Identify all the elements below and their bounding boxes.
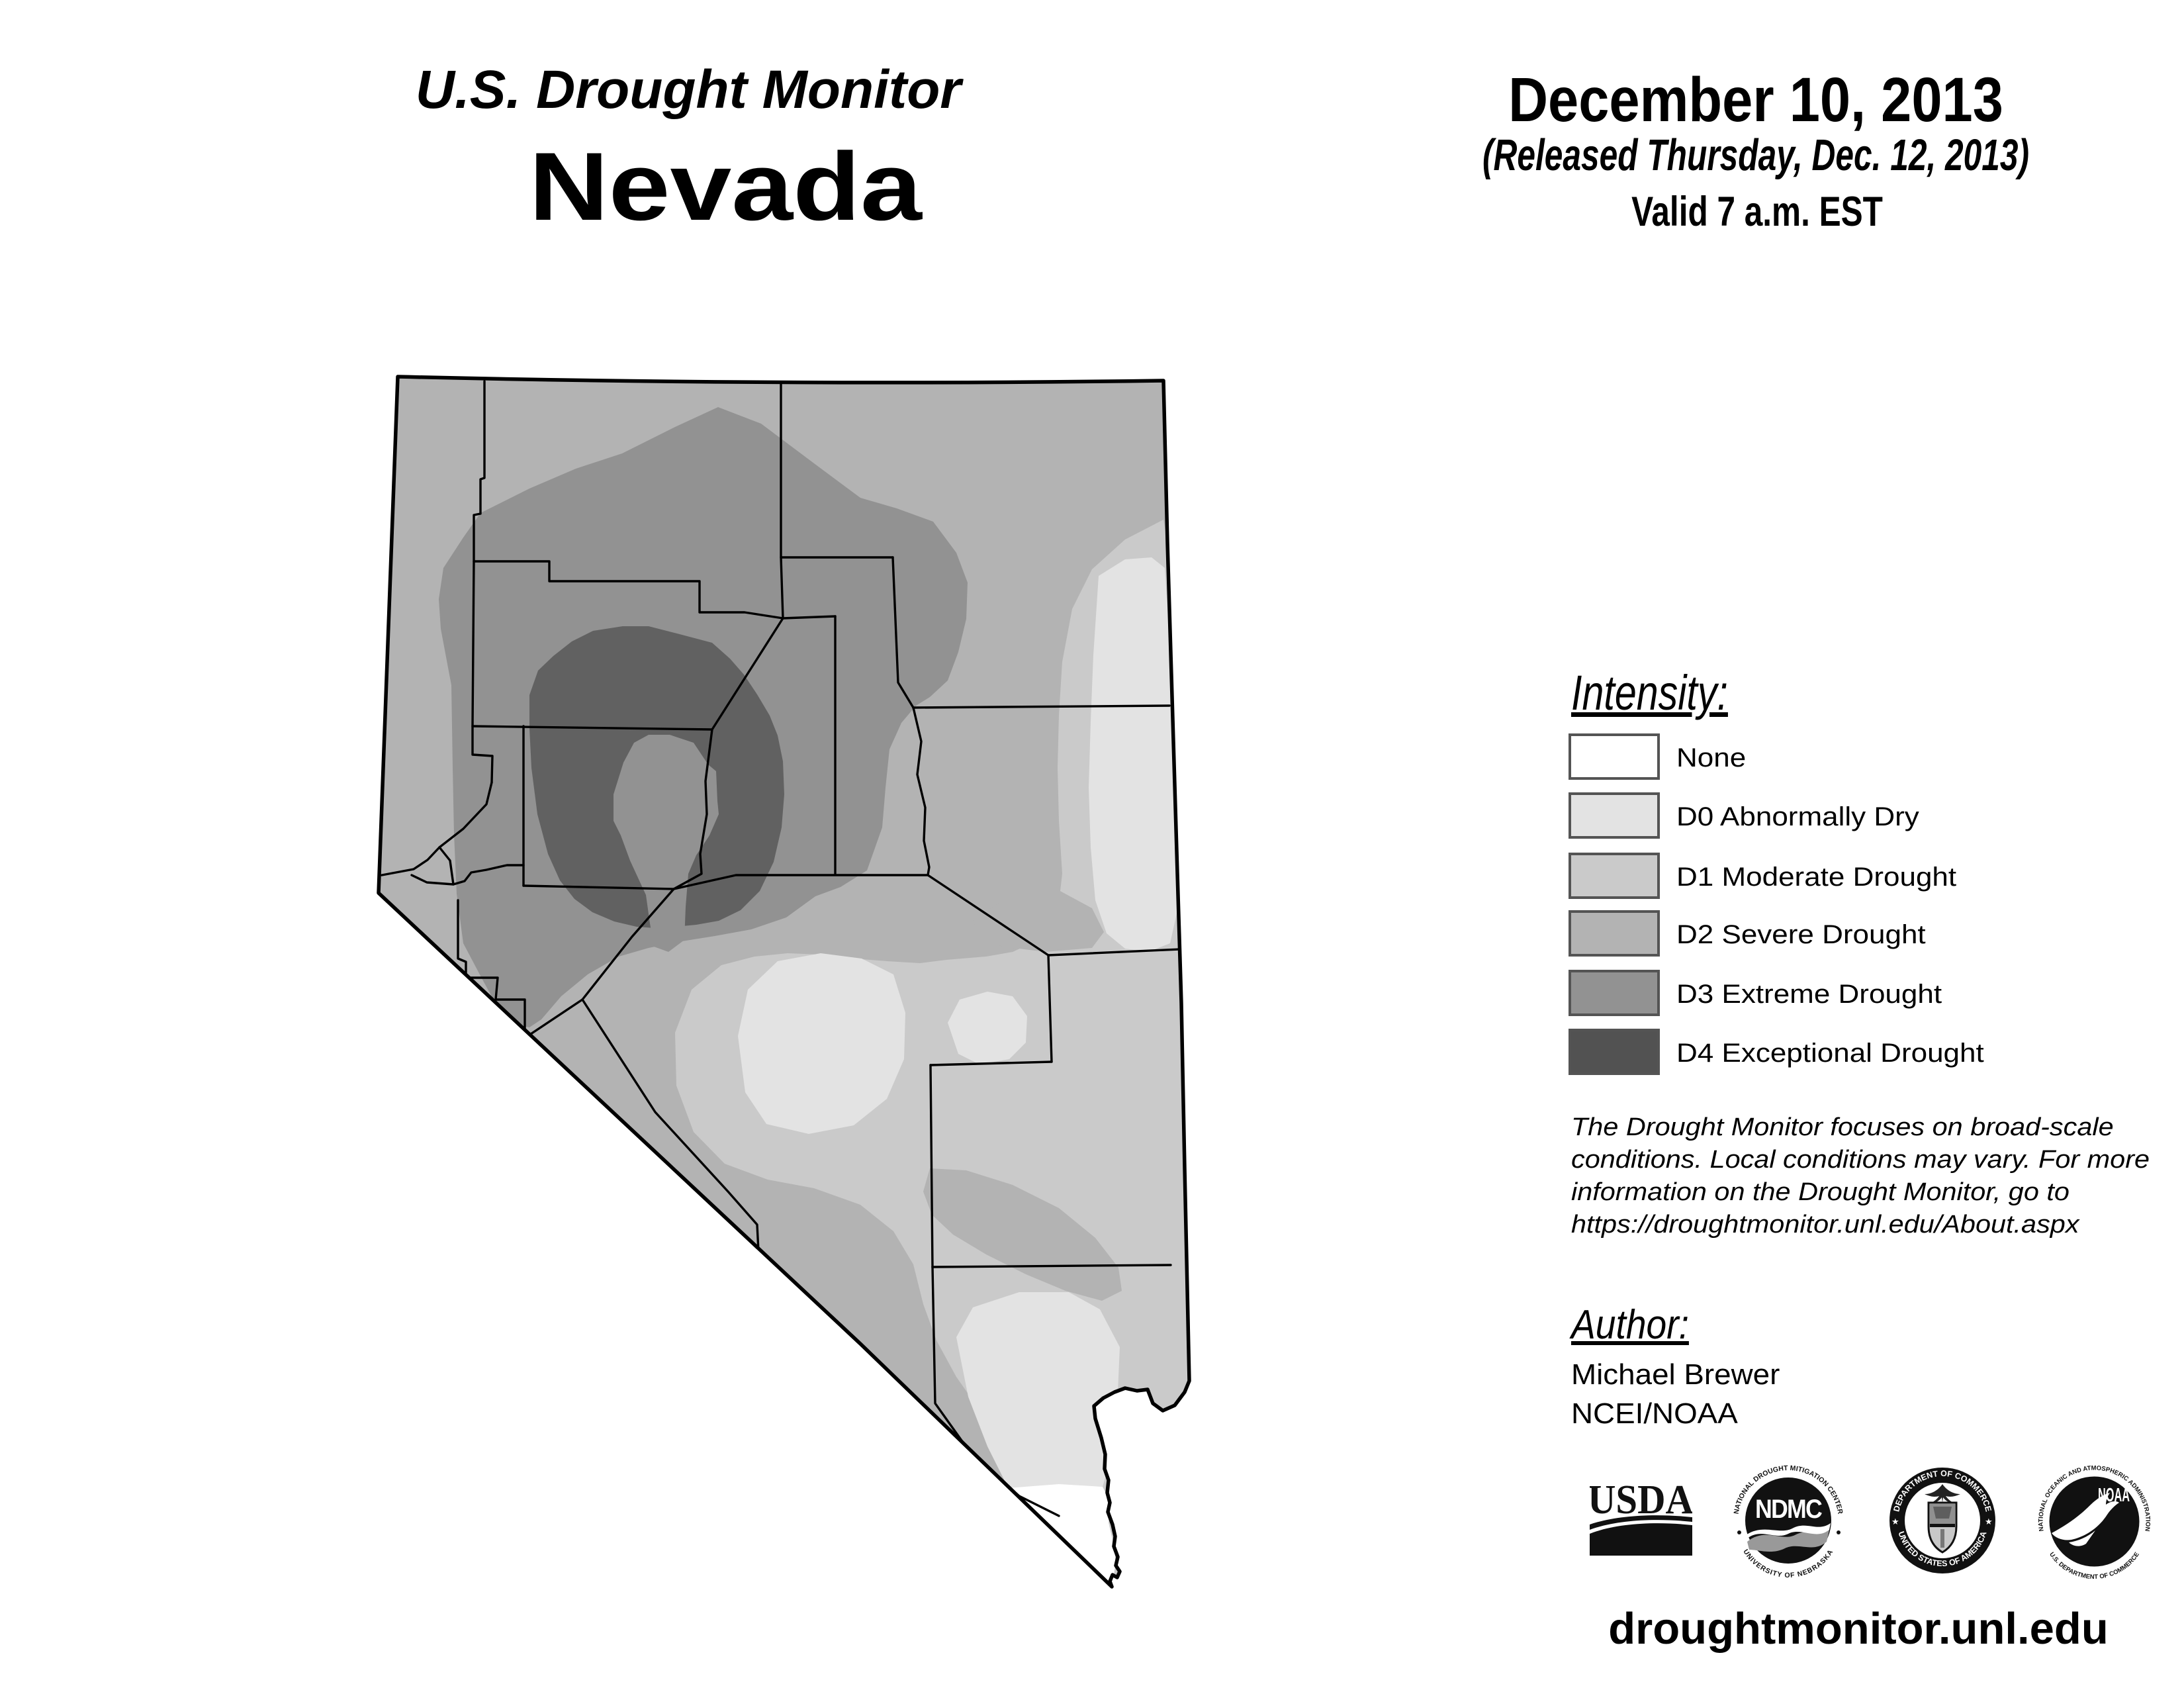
svg-text:★: ★: [1985, 1517, 1993, 1526]
svg-text:★: ★: [1891, 1517, 1899, 1526]
svg-text:NOAA: NOAA: [2098, 1485, 2130, 1506]
svg-text:NDMC: NDMC: [1755, 1495, 1822, 1524]
